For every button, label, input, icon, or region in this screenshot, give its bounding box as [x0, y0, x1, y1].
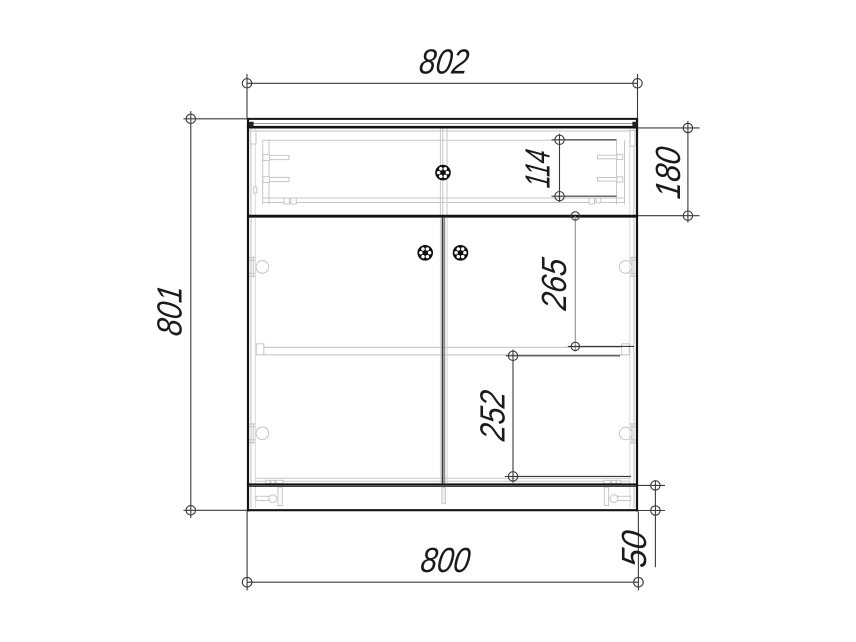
svg-text:252: 252 — [474, 388, 513, 444]
svg-text:180: 180 — [649, 144, 688, 201]
svg-text:801: 801 — [151, 283, 190, 338]
svg-text:802: 802 — [417, 43, 472, 82]
svg-text:800: 800 — [418, 541, 473, 580]
svg-text:265: 265 — [535, 255, 574, 313]
svg-text:50: 50 — [615, 528, 654, 570]
svg-text:114: 114 — [519, 147, 558, 190]
